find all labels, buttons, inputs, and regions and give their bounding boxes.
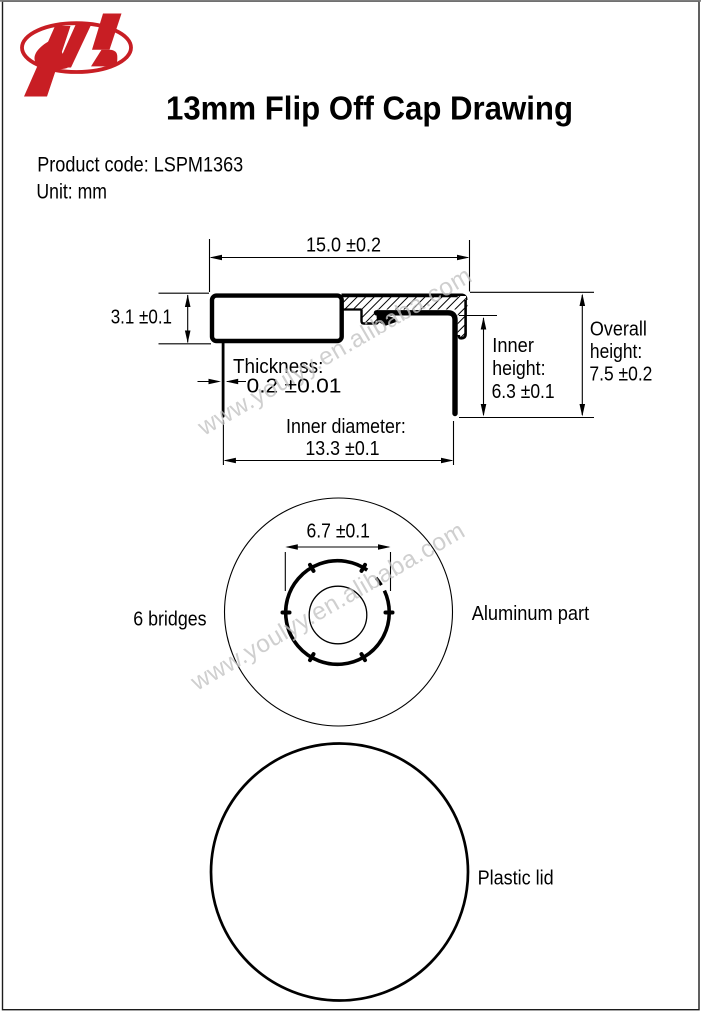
svg-text:height:: height: xyxy=(590,341,642,363)
svg-text:6.3 ±0.1: 6.3 ±0.1 xyxy=(492,381,555,403)
svg-text:Aluminum part: Aluminum part xyxy=(472,603,590,625)
svg-text:6 bridges: 6 bridges xyxy=(133,609,206,631)
svg-text:13.3 ±0.1: 13.3 ±0.1 xyxy=(305,438,379,460)
svg-text:13mm Flip Off Cap Drawing: 13mm Flip Off Cap Drawing xyxy=(166,90,573,127)
svg-text:Plastic lid: Plastic lid xyxy=(478,868,554,890)
svg-text:7.5 ±0.2: 7.5 ±0.2 xyxy=(589,364,652,386)
svg-text:Overall: Overall xyxy=(590,319,647,341)
svg-text:15.0 ±0.2: 15.0 ±0.2 xyxy=(306,235,381,257)
svg-text:6.7 ±0.1: 6.7 ±0.1 xyxy=(307,520,370,542)
svg-text:Product code: LSPM1363: Product code: LSPM1363 xyxy=(37,154,243,177)
svg-text:height:: height: xyxy=(492,358,545,380)
svg-text:Unit: mm: Unit: mm xyxy=(36,181,107,204)
svg-text:Inner diameter:: Inner diameter: xyxy=(286,416,406,438)
svg-text:3.1 ±0.1: 3.1 ±0.1 xyxy=(111,307,172,329)
svg-text:Inner: Inner xyxy=(492,335,534,357)
